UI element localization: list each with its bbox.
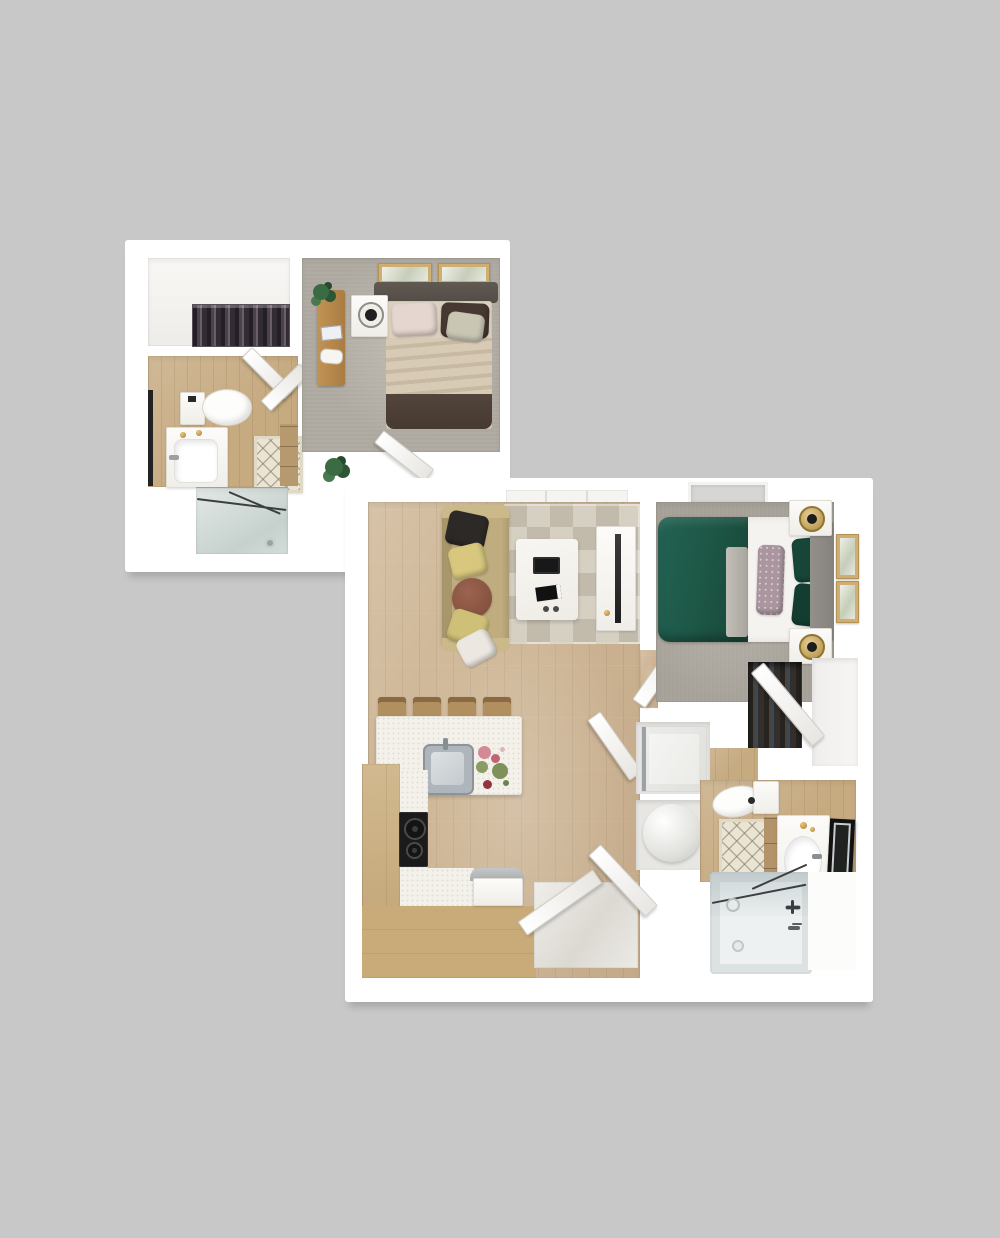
flowers-pink-bloom <box>478 746 491 759</box>
vanity1-gold-dish <box>180 432 186 438</box>
unit-main <box>345 478 873 1002</box>
bed2-gray-throw <box>726 547 748 637</box>
toilet1-bowl <box>202 389 252 426</box>
shower1-showerhead <box>265 538 275 548</box>
island-faucet <box>443 738 448 750</box>
coffee-table-cup-right <box>553 606 559 612</box>
flowers-red-bloom <box>483 780 492 789</box>
bedroom1-console-book-top <box>320 325 342 341</box>
water-heater-tank <box>643 804 701 862</box>
bedroom2-art-frame-top <box>836 534 859 579</box>
bathtub-drain-bottom <box>732 940 744 952</box>
bar-stool-3 <box>448 697 476 718</box>
entry-floor <box>534 882 638 968</box>
bathtub-spout <box>788 926 800 930</box>
bed1-foot-throw <box>386 394 492 429</box>
bedroom2-lamp-bottom <box>799 634 825 660</box>
vanity1-sink <box>174 439 218 483</box>
vanity1-faucet <box>169 455 179 460</box>
kitchen-cabinet-bottom <box>362 906 536 978</box>
vanity2-gold-soap-a <box>800 822 807 829</box>
toilet2-hinge <box>748 797 755 804</box>
bedroom2-lamp-top <box>799 506 825 532</box>
bath2-mat <box>719 819 770 877</box>
bed2-lumbar-pillow-patterned <box>756 545 785 616</box>
bath1-drawer-cabinet <box>280 424 298 486</box>
bathroom1-mirror-frame <box>148 390 153 486</box>
island-sink-basin <box>431 752 464 785</box>
cooktop-burner-large <box>404 818 426 840</box>
bed2-headboard <box>810 521 834 642</box>
cooktop-burner-small <box>406 842 423 859</box>
tv-console-knob <box>604 610 610 616</box>
vanity2-faucet <box>812 854 822 859</box>
bedroom1-console-plant <box>313 284 329 300</box>
countertop-corner <box>400 868 474 906</box>
bedroom1-table-lamp <box>358 302 384 328</box>
bathtub-drain-top <box>726 898 740 912</box>
bedroom1-floor-plant <box>325 458 343 476</box>
washer-dryer <box>641 726 707 792</box>
toilet2-tank <box>753 781 779 814</box>
bathroom2-corner-wall <box>808 872 856 970</box>
bar-stool-4 <box>483 697 511 718</box>
bed1-pillow-sage <box>445 311 486 344</box>
hanging-clothes-rack <box>192 304 290 347</box>
bar-stool-1 <box>378 697 406 718</box>
bed1-duvet-folds <box>386 338 492 396</box>
bed1-pillow-blush <box>391 302 438 337</box>
vanity2-gold-soap-b <box>810 827 815 832</box>
closet2-niche <box>812 658 858 766</box>
bedroom1-console-book-bottom <box>319 348 343 365</box>
bedroom2-art-frame-bottom <box>836 581 859 623</box>
vanity1-gold-soap <box>196 430 202 436</box>
coffee-table-cup-left <box>543 606 549 612</box>
bathtub-handle-cross-vertical <box>791 900 794 914</box>
flowers-leaf-large <box>492 763 508 779</box>
floorplan-canvas: { "scene": { "title": "3D rendered apart… <box>0 0 1000 1238</box>
bathroom2-hall-floor <box>702 748 758 784</box>
tv-screen <box>615 534 621 623</box>
toilet1-flush <box>188 396 196 402</box>
bar-stool-2 <box>413 697 441 718</box>
bed1-headboard <box>374 282 498 303</box>
coffee-table-tray <box>533 557 560 574</box>
entry-bench-seat <box>473 878 523 906</box>
